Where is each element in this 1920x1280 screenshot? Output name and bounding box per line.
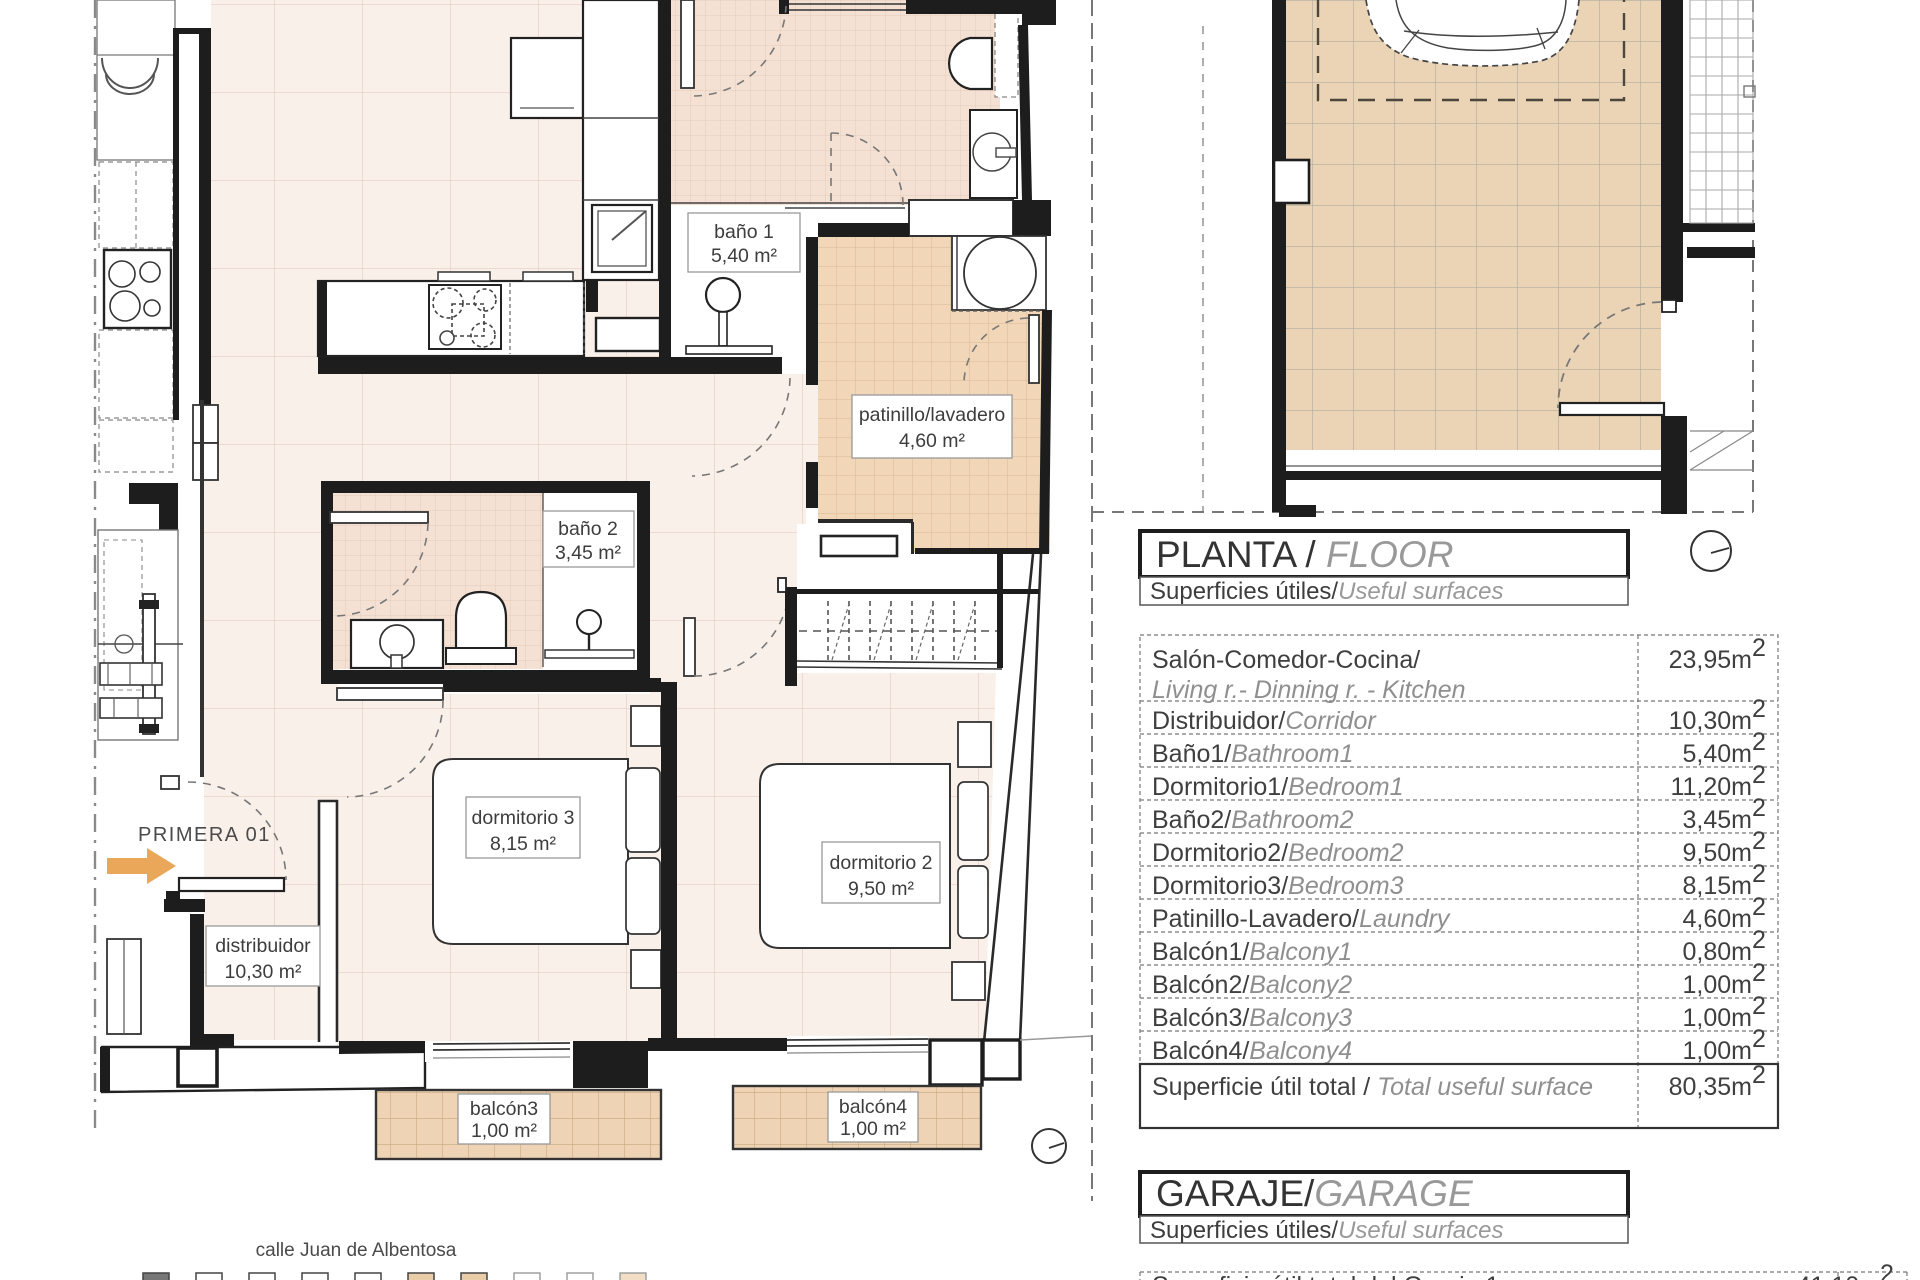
svg-text:2: 2 (1752, 860, 1766, 888)
svg-text:8,15m: 8,15m (1683, 872, 1752, 900)
svg-text:Superficies útiles/Useful surf: Superficies útiles/Useful surfaces (1150, 578, 1504, 605)
svg-text:Superficie útil total del Gara: Superficie útil total del Garaje 1 (1152, 1272, 1499, 1280)
svg-text:23,95m: 23,95m (1669, 646, 1752, 674)
svg-text:9,50 m²: 9,50 m² (848, 878, 915, 900)
svg-text:PRIMERA 01: PRIMERA 01 (138, 824, 271, 846)
svg-text:Dormitorio1/Bedroom1: Dormitorio1/Bedroom1 (1152, 773, 1404, 801)
svg-text:Superficie útil total / Total: Superficie útil total / Total useful sur… (1152, 1073, 1593, 1101)
svg-text:1,00m: 1,00m (1683, 1004, 1752, 1032)
svg-text:1,00 m²: 1,00 m² (840, 1118, 907, 1140)
svg-text:2: 2 (1880, 1260, 1894, 1280)
svg-text:2: 2 (1752, 827, 1766, 855)
svg-text:10,30 m²: 10,30 m² (225, 961, 302, 983)
svg-text:2: 2 (1752, 634, 1766, 662)
svg-text:Patinillo-Lavadero/Laundry: Patinillo-Lavadero/Laundry (1152, 905, 1451, 933)
svg-text:2: 2 (1752, 1061, 1766, 1089)
svg-text:dormitorio 3: dormitorio 3 (472, 807, 575, 829)
svg-text:Balcón1/Balcony1: Balcón1/Balcony1 (1152, 938, 1352, 966)
svg-text:Dormitorio2/Bedroom2: Dormitorio2/Bedroom2 (1152, 839, 1404, 867)
svg-text:0,80m: 0,80m (1683, 938, 1752, 966)
svg-text:Distribuidor/Corridor: Distribuidor/Corridor (1152, 707, 1377, 735)
svg-text:8,15 m²: 8,15 m² (490, 833, 557, 855)
svg-text:baño 2: baño 2 (558, 518, 618, 540)
svg-text:dormitorio 2: dormitorio 2 (830, 852, 933, 874)
svg-text:balcón3: balcón3 (470, 1098, 538, 1120)
svg-text:GARAJE/GARAGE: GARAJE/GARAGE (1156, 1173, 1474, 1214)
svg-text:2: 2 (1752, 728, 1766, 756)
svg-text:baño 1: baño 1 (714, 221, 774, 243)
svg-text:9,50m: 9,50m (1683, 839, 1752, 867)
svg-text:3,45m: 3,45m (1683, 806, 1752, 834)
svg-text:2: 2 (1752, 1025, 1766, 1053)
svg-text:Balcón4/Balcony4: Balcón4/Balcony4 (1152, 1037, 1352, 1065)
svg-text:2: 2 (1752, 794, 1766, 822)
svg-text:PLANTA / FLOOR: PLANTA / FLOOR (1156, 534, 1453, 575)
svg-text:2: 2 (1752, 695, 1766, 723)
svg-text:1,00m: 1,00m (1683, 1037, 1752, 1065)
svg-text:calle Juan de Albentosa: calle Juan de Albentosa (256, 1240, 457, 1261)
svg-text:5,40 m²: 5,40 m² (711, 245, 778, 267)
svg-text:3,45 m²: 3,45 m² (555, 542, 622, 564)
svg-text:2: 2 (1752, 992, 1766, 1020)
svg-text:balcón4: balcón4 (839, 1096, 907, 1118)
svg-text:2: 2 (1752, 893, 1766, 921)
svg-text:2: 2 (1752, 761, 1766, 789)
svg-text:80,35m: 80,35m (1669, 1073, 1752, 1101)
svg-text:1,00 m²: 1,00 m² (471, 1120, 538, 1142)
svg-text:Superficies útiles/Useful surf: Superficies útiles/Useful surfaces (1150, 1217, 1504, 1244)
svg-text:Living r.- Dinning r. - Kitche: Living r.- Dinning r. - Kitchen (1152, 676, 1466, 704)
svg-text:Balcón2/Balcony2: Balcón2/Balcony2 (1152, 971, 1352, 999)
svg-text:10,30m: 10,30m (1669, 707, 1752, 735)
svg-text:4,60 m²: 4,60 m² (899, 430, 966, 452)
svg-text:1,00m: 1,00m (1683, 971, 1752, 999)
svg-text:41,10m: 41,10m (1797, 1272, 1880, 1280)
svg-text:2: 2 (1752, 959, 1766, 987)
svg-text:11,20m: 11,20m (1670, 773, 1752, 801)
svg-text:Dormitorio3/Bedroom3: Dormitorio3/Bedroom3 (1152, 872, 1404, 900)
svg-text:distribuidor: distribuidor (215, 935, 311, 957)
svg-text:Balcón3/Balcony3: Balcón3/Balcony3 (1152, 1004, 1352, 1032)
svg-text:5,40m: 5,40m (1683, 740, 1752, 768)
svg-text:2: 2 (1752, 926, 1766, 954)
svg-text:Baño2/Bathroom2: Baño2/Bathroom2 (1152, 806, 1354, 834)
svg-text:Salón-Comedor-Cocina/: Salón-Comedor-Cocina/ (1152, 646, 1420, 674)
svg-text:patinillo/lavadero: patinillo/lavadero (859, 404, 1006, 426)
svg-text:4,60m: 4,60m (1683, 905, 1752, 933)
svg-text:Baño1/Bathroom1: Baño1/Bathroom1 (1152, 740, 1354, 768)
